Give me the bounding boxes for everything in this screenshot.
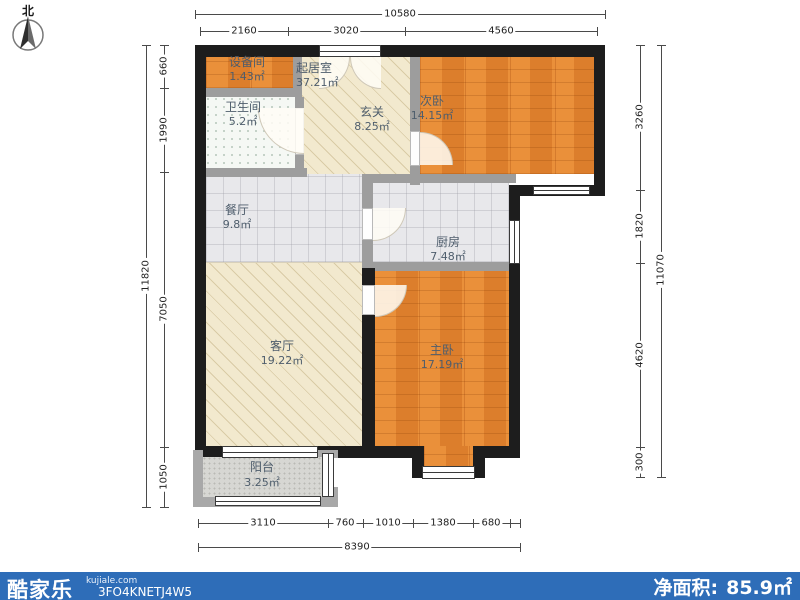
dim-tick: [636, 477, 645, 478]
dim-top-seg-1: 3020: [331, 26, 360, 37]
dim-bottom-seg-4: 680: [479, 518, 502, 529]
balcony-window-right: [322, 453, 334, 497]
dim-bottom-seg-3: 1380: [428, 518, 457, 529]
room-name: 厨房: [414, 234, 482, 250]
dim-tick: [636, 447, 645, 448]
room-name: 设备间: [210, 55, 284, 70]
window-step-wall: [533, 186, 590, 195]
room-label-kitchen: 厨房 7.48㎡: [414, 234, 482, 265]
dim-right-seg-0: 3260: [635, 102, 646, 131]
dim-right-seg-2: 4620: [635, 340, 646, 369]
dim-line-bottom-segments: [198, 523, 520, 524]
dim-tick: [288, 27, 289, 36]
dim-tick: [520, 543, 521, 552]
net-area: 净面积: 85.9㎡: [654, 572, 793, 600]
room-name: 起居室: [296, 60, 368, 76]
room-label-living-unit: 起居室 37.21㎡: [296, 60, 368, 91]
dim-bottom-total: 8390: [342, 542, 371, 553]
entrance-threshold: [319, 45, 381, 57]
compass-icon: [10, 14, 46, 54]
exterior-wall-left: [195, 45, 206, 458]
dim-left-seg-3: 1050: [159, 462, 170, 491]
room-name: 客厅: [248, 338, 316, 354]
dim-tick: [142, 507, 151, 508]
dim-left-seg-1: 1990: [159, 115, 170, 144]
dim-tick: [160, 507, 169, 508]
interior-wall: [206, 168, 307, 177]
room-area: 17.19㎡: [408, 358, 476, 373]
bay-window-floor: [424, 446, 473, 468]
room-name: 阳台: [230, 460, 294, 476]
dim-left-seg-2: 7050: [159, 294, 170, 323]
dim-tick: [597, 27, 598, 36]
room-label-dining: 餐厅 9.8㎡: [205, 202, 269, 233]
dim-tick: [328, 519, 329, 528]
dim-tick: [510, 519, 511, 528]
interior-wall: [362, 174, 516, 183]
exterior-wall-right-upper: [594, 45, 605, 196]
dim-right-total: 11070: [656, 252, 667, 288]
dim-bottom-seg-2: 1010: [373, 518, 402, 529]
room-label-entry-hall: 玄关 8.25㎡: [338, 104, 406, 135]
dim-tick: [405, 27, 406, 36]
room-area: 8.25㎡: [338, 120, 406, 135]
dim-left-seg-0: 660: [159, 54, 170, 77]
dim-tick: [657, 45, 666, 46]
dim-tick: [473, 519, 474, 528]
room-area: 3.25㎡: [230, 476, 294, 490]
dim-tick: [413, 519, 414, 528]
dim-tick: [636, 45, 645, 46]
dim-tick: [636, 263, 645, 264]
dim-top-seg-2: 4560: [486, 26, 515, 37]
dim-top-total: 10580: [382, 9, 418, 20]
room-name: 次卧: [400, 93, 464, 109]
window-kitchen: [509, 220, 520, 264]
dim-tick: [657, 477, 666, 478]
bay-window-glass: [422, 466, 475, 479]
room-name: 卫生间: [208, 99, 278, 115]
floorplan-canvas: 设备间 1.43㎡ 起居室 37.21㎡ 卫生间 5.2㎡ 玄关 8.25㎡ 次…: [0, 0, 800, 600]
room-label-equipment: 设备间 1.43㎡: [210, 55, 284, 84]
net-area-label: 净面积:: [654, 573, 719, 600]
kitchen-door-leaf: [362, 208, 373, 240]
room-area: 37.21㎡: [296, 76, 368, 91]
room-name: 主卧: [408, 342, 476, 358]
room-label-living-room: 客厅 19.22㎡: [248, 338, 316, 369]
plan-code: 3FO4KNETJ4W5: [98, 585, 192, 599]
room-area: 1.43㎡: [210, 70, 284, 84]
dim-tick: [198, 519, 199, 528]
room-label-balcony: 阳台 3.25㎡: [230, 460, 294, 490]
dim-tick: [195, 10, 196, 19]
room-area: 9.8㎡: [205, 218, 269, 233]
room-area: 14.15㎡: [400, 109, 464, 124]
balcony-slider-window: [222, 446, 318, 458]
second-bedroom-door-leaf: [410, 131, 420, 166]
dim-tick: [605, 10, 606, 19]
room-name: 餐厅: [205, 202, 269, 218]
dim-tick: [160, 172, 169, 173]
net-area-value: 85.9㎡: [726, 573, 792, 600]
dim-tick: [200, 27, 201, 36]
dim-line-top-segments: [200, 31, 597, 32]
floor-transition-line: [206, 262, 362, 263]
dim-tick: [520, 519, 521, 528]
dim-tick: [160, 447, 169, 448]
room-label-bathroom: 卫生间 5.2㎡: [208, 99, 278, 130]
dim-tick: [142, 45, 151, 46]
dim-tick: [636, 190, 645, 191]
dim-top-seg-0: 2160: [229, 26, 258, 37]
dim-tick: [160, 45, 169, 46]
room-label-master-bedroom: 主卧 17.19㎡: [408, 342, 476, 373]
dim-left-total: 11820: [141, 258, 152, 294]
balcony-window-bottom: [215, 496, 321, 506]
room-area: 7.48㎡: [414, 250, 482, 265]
room-label-second-bedroom: 次卧 14.15㎡: [400, 93, 464, 124]
dim-tick: [363, 519, 364, 528]
dim-tick: [198, 543, 199, 552]
dim-tick: [160, 88, 169, 89]
dim-right-seg-3: 300: [635, 450, 646, 473]
room-area: 5.2㎡: [208, 115, 278, 130]
interior-wall: [206, 88, 302, 97]
dim-right-seg-1: 1820: [635, 211, 646, 240]
dim-bottom-seg-1: 760: [333, 518, 356, 529]
master-bedroom-door-leaf: [362, 285, 375, 315]
room-area: 19.22㎡: [248, 354, 316, 369]
room-name: 玄关: [338, 104, 406, 120]
brand-logo: 酷家乐: [7, 574, 73, 600]
dim-bottom-seg-0: 3110: [248, 518, 277, 529]
